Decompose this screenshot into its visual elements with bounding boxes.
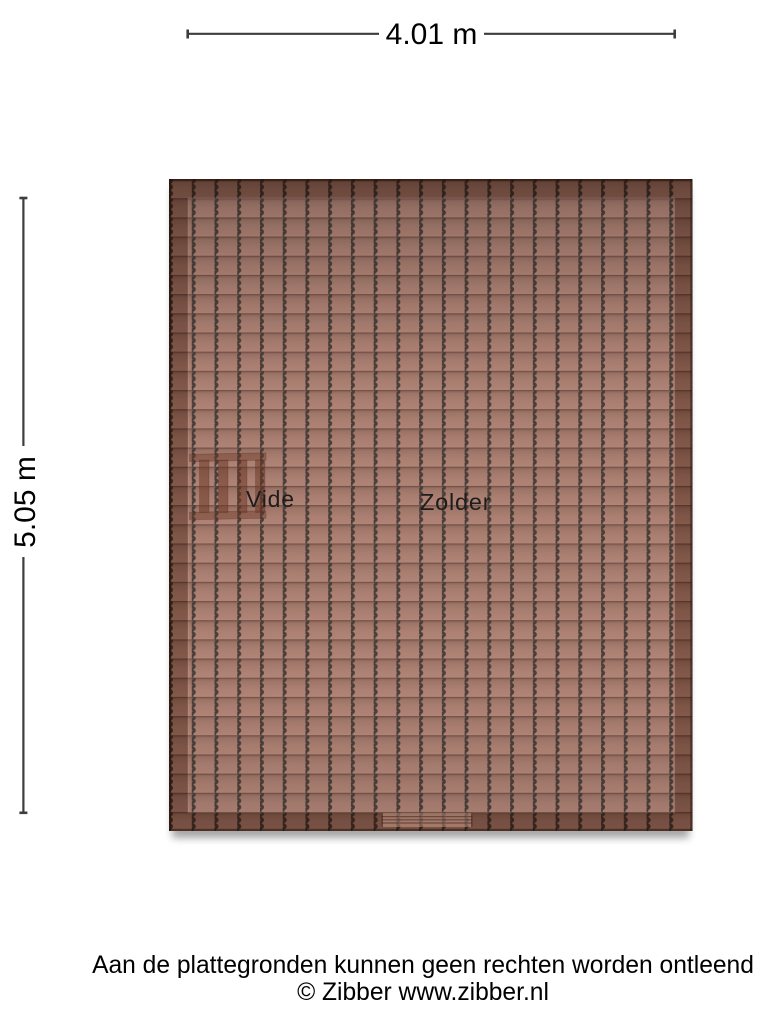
svg-text:4.01 m: 4.01 m: [386, 18, 478, 51]
svg-text:Aan de plattegronden kunnen ge: Aan de plattegronden kunnen geen rechten…: [92, 952, 754, 979]
svg-text:Vide: Vide: [246, 486, 295, 512]
svg-text:© Zibber www.zibber.nl: © Zibber www.zibber.nl: [297, 979, 549, 1006]
svg-text:Zolder: Zolder: [420, 489, 491, 515]
svg-text:5.05 m: 5.05 m: [9, 456, 42, 548]
